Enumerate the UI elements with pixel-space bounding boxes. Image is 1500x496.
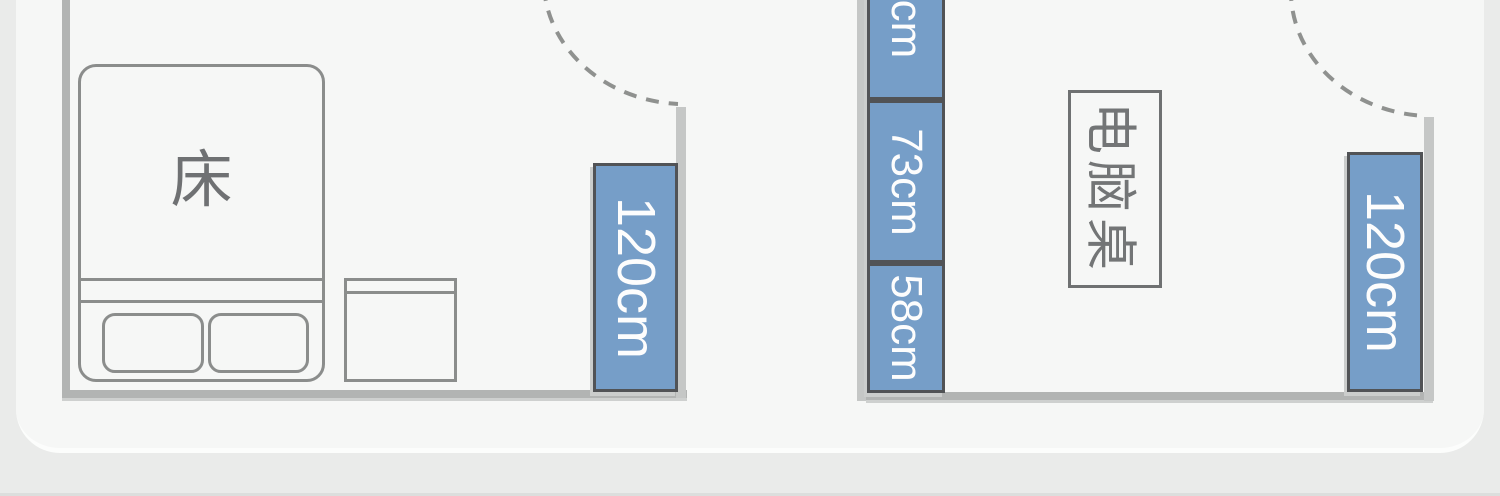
bed-line-1	[80, 278, 323, 281]
dimension-box-58cm: 58cm	[867, 263, 945, 393]
wall-strip-middle	[857, 0, 867, 401]
dimension-label-partial: cm	[881, 0, 931, 59]
dimension-label-73cm: 73cm	[881, 128, 931, 236]
nightstand-line	[347, 291, 454, 294]
wall-bottom-right	[866, 392, 1433, 400]
dimension-box-right-120cm: 120cm	[1347, 152, 1423, 392]
dimension-box-left-120cm: 120cm	[593, 163, 678, 392]
desk-label-box: 电脑桌	[1068, 90, 1162, 288]
dimension-box-73cm: 73cm	[867, 100, 945, 263]
dimension-label-right: 120cm	[1354, 191, 1416, 353]
wall-bottom-right-shadow	[866, 400, 1433, 403]
pillow-right	[208, 313, 309, 373]
dimension-box-partial-cm: cm	[867, 0, 945, 100]
floorplan-canvas: 床 电脑桌 120cm cm 73cm 58cm 120cm	[0, 0, 1500, 496]
bed-label-zone: 床	[78, 64, 325, 284]
wall-bottom-left-shadow	[62, 398, 687, 401]
dimension-label-left: 120cm	[605, 196, 667, 358]
bed-label: 床	[170, 129, 232, 219]
wall-left	[62, 0, 70, 398]
bed-line-2	[80, 300, 323, 303]
dimension-label-58cm: 58cm	[881, 274, 931, 382]
wall-right	[1424, 117, 1434, 401]
pillow-left	[102, 313, 204, 373]
desk-label: 电脑桌	[1078, 102, 1153, 276]
